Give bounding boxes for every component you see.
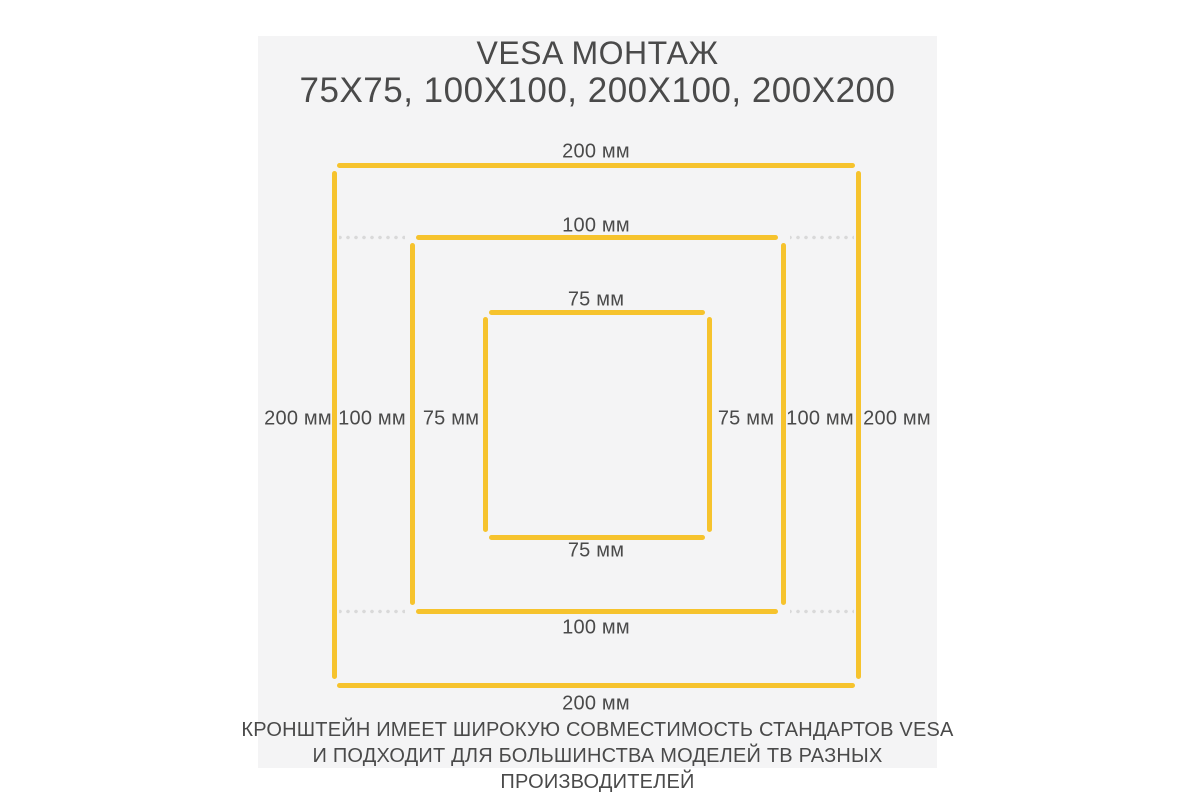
dimension-label-top-200: 200 мм	[562, 141, 630, 164]
vesa-75-right-edge	[707, 317, 712, 532]
title-line1: VESA МОНТАЖ	[258, 34, 937, 72]
dotted-guide-bottom-left	[339, 609, 405, 614]
page-title: VESA МОНТАЖ 75Х75, 100Х100, 200Х100, 200…	[258, 34, 937, 110]
vesa-diagram-canvas: VESA МОНТАЖ 75Х75, 100Х100, 200Х100, 200…	[0, 0, 1200, 800]
dimension-label-left-200: 200 мм	[264, 408, 332, 431]
title-standards-line: 75Х75, 100Х100, 200Х100, 200Х200	[258, 72, 937, 110]
footer-note: КРОНШТЕЙН ИМЕЕТ ШИРОКУЮ СОВМЕСТИМОСТЬ СТ…	[238, 717, 957, 795]
vesa-200-top-edge	[337, 163, 855, 168]
dimension-label-bottom-200: 200 мм	[562, 693, 630, 716]
dimension-label-right-200: 200 мм	[863, 408, 931, 431]
dimension-label-left-75: 75 мм	[423, 408, 479, 431]
dimension-label-right-75: 75 мм	[718, 408, 774, 431]
vesa-100-left-edge	[410, 243, 415, 605]
dimension-label-bottom-75: 75 мм	[568, 540, 624, 563]
vesa-75-left-edge	[483, 317, 488, 532]
dimension-label-top-75: 75 мм	[568, 289, 624, 312]
dimension-label-right-100: 100 мм	[786, 408, 854, 431]
dimension-label-bottom-100: 100 мм	[562, 617, 630, 640]
vesa-200-left-edge	[332, 171, 337, 679]
footer-note-line2: И ПОДХОДИТ ДЛЯ БОЛЬШИНСТВА МОДЕЛЕЙ ТВ РА…	[238, 743, 957, 795]
dimension-label-top-100: 100 мм	[562, 215, 630, 238]
dotted-guide-top-right	[790, 235, 854, 240]
dimension-label-left-100: 100 мм	[338, 408, 406, 431]
vesa-200-right-edge	[856, 171, 861, 679]
vesa-100-bottom-edge	[416, 609, 778, 614]
footer-note-line1: КРОНШТЕЙН ИМЕЕТ ШИРОКУЮ СОВМЕСТИМОСТЬ СТ…	[238, 717, 957, 743]
vesa-200-bottom-edge	[337, 683, 855, 688]
dotted-guide-bottom-right	[790, 609, 854, 614]
dotted-guide-top-left	[339, 235, 405, 240]
